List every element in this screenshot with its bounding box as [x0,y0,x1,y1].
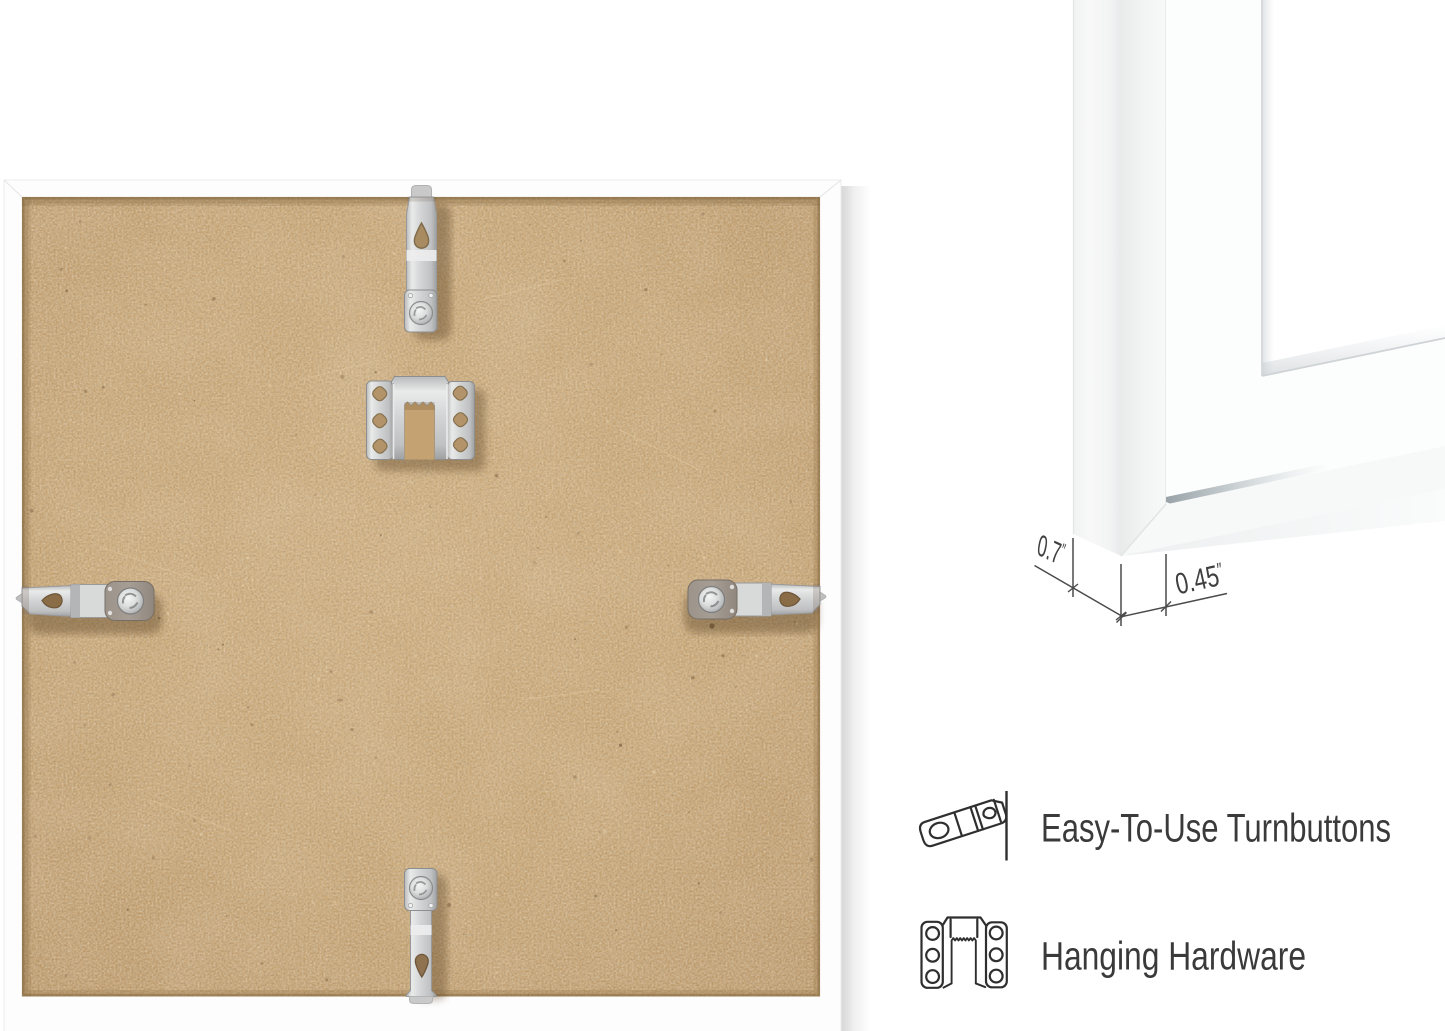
svg-text:Easy-To-Use Turnbuttons: Easy-To-Use Turnbuttons [1041,807,1391,851]
svg-text:Hanging Hardware: Hanging Hardware [1041,935,1306,979]
